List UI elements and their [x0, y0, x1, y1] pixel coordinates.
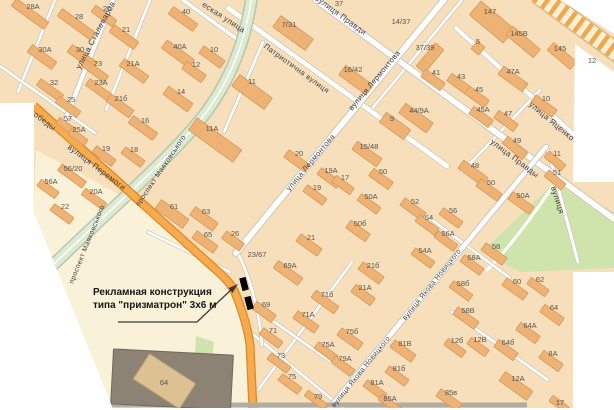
building-label: 75А — [321, 340, 334, 349]
building-label: 65 — [204, 230, 212, 239]
building-label: 17 — [341, 173, 349, 182]
annotation-label: Рекламная конструкция типа "призматрон" … — [93, 286, 217, 312]
building-label: 85в — [445, 388, 457, 397]
building-label: 23/67 — [248, 250, 267, 259]
annotation-line-2: типа "призматрон" 3х6 м — [93, 299, 217, 312]
building-label: 75б — [346, 327, 359, 336]
building-label: 69 — [262, 300, 270, 309]
building-label: 69А — [283, 261, 296, 270]
building-label: 54А — [418, 246, 431, 255]
building-label: 81В — [398, 339, 411, 348]
building-label: 16/42 — [344, 65, 363, 74]
building-label: 62 — [536, 275, 544, 284]
building-label: 145 — [554, 44, 567, 53]
building-label: 58 — [492, 242, 500, 251]
building-label: 12 — [192, 60, 200, 69]
building-label: 64 — [160, 378, 168, 387]
building-label: 12 — [588, 56, 596, 65]
building-label: 79А — [338, 354, 351, 363]
map-canvas[interactable]: 28А28264030А302140А2321А123223А142521б16… — [0, 0, 614, 410]
building-label: 81А — [370, 378, 383, 387]
building-label: 64 — [550, 303, 558, 312]
building-label: 11 — [248, 77, 256, 86]
building-label: 73 — [277, 351, 285, 360]
building-label: 37/39 — [416, 43, 435, 52]
building-label: 28А — [26, 2, 39, 11]
building-label: 9 — [390, 114, 394, 123]
building-label: 12б — [451, 336, 464, 345]
building-label: 44/9А — [409, 106, 429, 115]
building-label: 147 — [484, 7, 497, 16]
building-label: 43 — [457, 72, 465, 81]
building-label: 50б — [354, 219, 367, 228]
building-label: 57 — [64, 114, 72, 123]
building-label: 5 — [476, 37, 480, 46]
building-label: 71А — [301, 310, 314, 319]
building-label: 12В — [473, 335, 486, 344]
building-label: 52 — [411, 197, 419, 206]
building-label: 40 — [182, 7, 190, 16]
annotation-line-1: Рекламная конструкция — [93, 286, 217, 299]
building-label: 61 — [170, 202, 178, 211]
building-label: 145В — [510, 29, 528, 38]
building-label: 56 — [449, 206, 457, 215]
building-label: 21б — [367, 261, 380, 270]
building-label: 23А — [94, 78, 107, 87]
building-label: 8А — [548, 349, 557, 358]
building-label: 56/20 — [64, 164, 83, 173]
building-label: 25 — [67, 95, 75, 104]
building-label: 20 — [295, 149, 303, 158]
building-label: 26 — [231, 229, 239, 238]
building-label: 20А — [89, 187, 102, 196]
building-label: 56А — [44, 177, 57, 186]
building-label: 45 — [475, 85, 483, 94]
building-label: 19 — [102, 144, 110, 153]
building-label: 10 — [542, 94, 550, 103]
building-label: 16 — [141, 116, 149, 125]
building-label: 15/48 — [360, 142, 379, 151]
building-label: 50А — [364, 192, 377, 201]
building-label: 58А — [467, 253, 480, 262]
building-label: 32 — [50, 78, 58, 87]
building-label: 56А — [441, 229, 454, 238]
building-label: 18 — [130, 145, 138, 154]
building-label: 14 — [177, 87, 185, 96]
building-label: 79 — [314, 392, 322, 401]
building-label: 11А — [206, 124, 219, 133]
building-label: 63 — [202, 207, 210, 216]
building-label: 10 — [210, 45, 218, 54]
building-label: 23 — [94, 59, 102, 68]
building-label: 49 — [513, 136, 521, 145]
building-label: 21б — [115, 94, 128, 103]
building-label: 58В — [461, 306, 474, 315]
building-label: 17 — [556, 398, 564, 407]
building-label: 50А — [516, 191, 529, 200]
building-label: 21 — [307, 233, 315, 242]
building-label: 7/31 — [282, 20, 297, 29]
building-label: 47 — [504, 109, 512, 118]
building-label: 48 — [471, 161, 479, 170]
building-label: 71 — [269, 326, 277, 335]
building-label: 64б — [502, 338, 515, 347]
building-label: 11 — [553, 149, 561, 158]
building-label: 54 — [425, 213, 433, 222]
building-label: 60 — [513, 277, 521, 286]
building-label: 81б — [393, 364, 406, 373]
building-label: 47А — [506, 67, 519, 76]
building-label: 75 — [288, 372, 296, 381]
building-label: 28 — [75, 12, 83, 21]
building-label: 19 — [313, 183, 321, 192]
building-label: 58б — [457, 279, 470, 288]
building-label: 50 — [379, 167, 387, 176]
building-label: 12А — [511, 374, 524, 383]
building-label: 41 — [432, 68, 440, 77]
building-label: 51 — [553, 168, 561, 177]
building-label: 71б — [321, 290, 334, 299]
building-label: 85А — [383, 394, 396, 403]
building-label: 14/37 — [392, 17, 411, 26]
building-label: 21 — [122, 25, 130, 34]
building-label: 30А — [38, 45, 51, 54]
building-label: 19А — [324, 166, 337, 175]
building-label: 21А — [126, 59, 139, 68]
building-label: 22 — [61, 202, 69, 211]
building-label: 21А — [358, 283, 371, 292]
building-label: 25А — [72, 125, 85, 134]
building-label: 64А — [523, 321, 536, 330]
building-label: 50 — [487, 178, 495, 187]
building-label: 40А — [173, 42, 186, 51]
building-label: 45А — [476, 105, 489, 114]
map-screenshot: 28А28264030А302140А2321А123223А142521б16… — [0, 0, 614, 410]
